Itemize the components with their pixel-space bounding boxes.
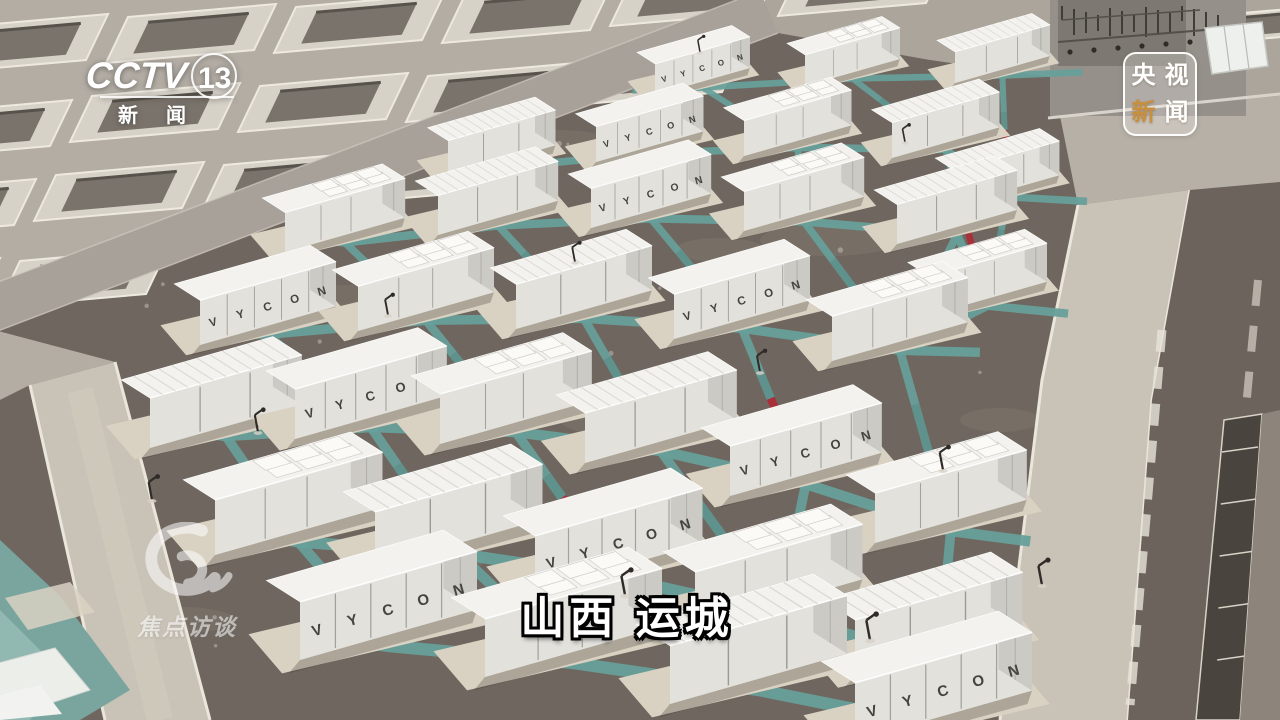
- badge-char-highlight: 新: [1132, 101, 1156, 125]
- gravel-speckle: [658, 287, 661, 290]
- lamp-head: [1045, 557, 1050, 562]
- gravel-patch: [960, 408, 1040, 432]
- gravel-speckle: [318, 339, 322, 343]
- channel-logo-subtext-char2: 闻: [166, 99, 186, 128]
- lamp-head: [578, 241, 582, 245]
- substation-insulator: [1115, 45, 1120, 50]
- cctv-news-corner-badge: 央 视 新 闻: [1123, 52, 1197, 136]
- channel-logo-number: 13: [198, 62, 231, 96]
- lamp-base: [865, 639, 875, 643]
- channel-logo-subtext-char1: 新: [118, 99, 138, 128]
- lamp-base: [697, 52, 703, 55]
- channel-logo: CCTV 13 新 闻: [80, 50, 280, 140]
- lamp-head: [907, 123, 911, 127]
- lamp-base: [756, 371, 764, 375]
- watermark-swirl-icon: [134, 522, 244, 608]
- lamp-head: [873, 611, 878, 616]
- lamp-base: [1037, 584, 1047, 588]
- badge-char: 闻: [1165, 101, 1189, 125]
- video-frame: VYCONVYCONVYCONVYCONVYCONVYCONVYCONVYCON…: [0, 0, 1280, 720]
- substation-insulator: [1067, 49, 1072, 54]
- lamp-base: [384, 314, 392, 317]
- gravel-speckle: [978, 371, 981, 374]
- gravel-speckle: [144, 304, 148, 308]
- gravel-speckle: [566, 143, 569, 146]
- lamp-base: [571, 261, 578, 264]
- lamp-head: [763, 349, 767, 353]
- location-caption: 山西 运城: [520, 582, 733, 646]
- lamp-base: [939, 469, 948, 473]
- substation-insulator: [1091, 47, 1096, 52]
- lamp-base: [254, 431, 262, 435]
- gravel-speckle: [838, 247, 843, 252]
- substation-insulator: [1139, 43, 1144, 48]
- gravel-speckle: [161, 282, 165, 286]
- substation-insulator: [1187, 39, 1192, 44]
- lamp-head: [391, 293, 395, 297]
- channel-logo-network-text: CCTV: [85, 55, 189, 97]
- badge-char: 视: [1165, 64, 1189, 88]
- substation-insulator: [1163, 41, 1168, 46]
- lamp-head: [946, 445, 951, 450]
- logo-underline: [100, 96, 234, 98]
- program-watermark: 焦点访谈: [112, 522, 262, 642]
- lamp-base: [902, 142, 909, 145]
- gravel-speckle: [214, 644, 217, 647]
- lamp-base: [148, 499, 157, 503]
- substation-container: [1205, 22, 1268, 74]
- lamp-head: [702, 35, 705, 38]
- badge-char: 央: [1132, 64, 1156, 88]
- watermark-program-name: 焦点访谈: [112, 608, 262, 642]
- lamp-head: [261, 407, 266, 412]
- lamp-head: [628, 567, 633, 572]
- lamp-head: [155, 474, 160, 479]
